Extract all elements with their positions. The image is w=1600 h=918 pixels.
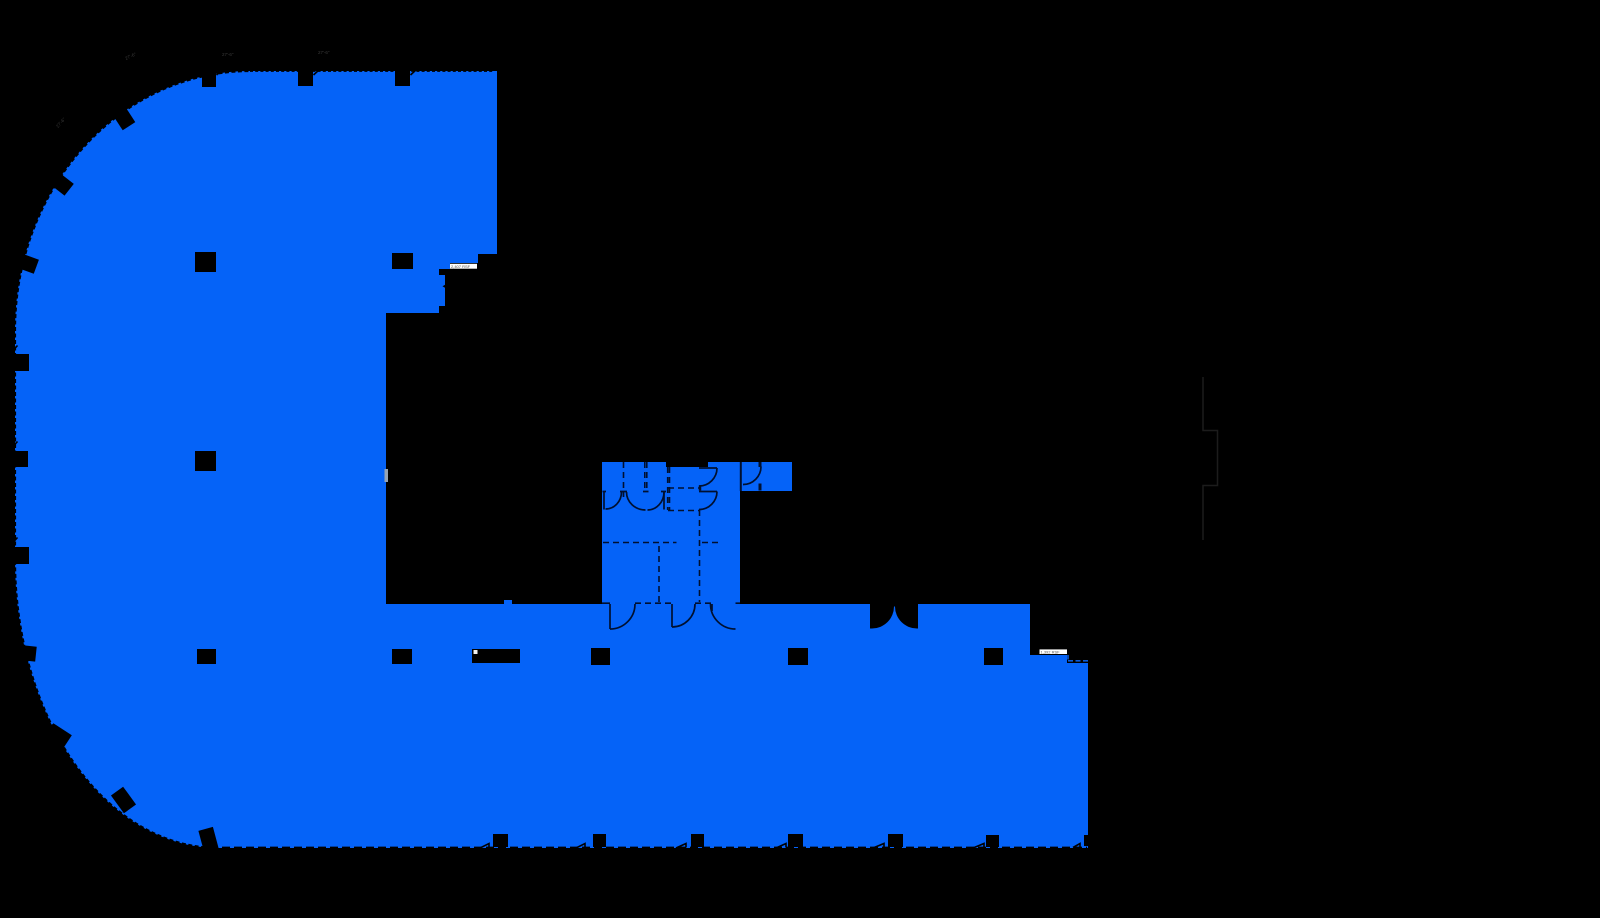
svg-text:2,407 RSF: 2,407 RSF bbox=[451, 264, 471, 269]
svg-text:27'-6": 27'-6" bbox=[318, 50, 330, 55]
svg-text:27'-6": 27'-6" bbox=[222, 52, 234, 57]
svg-text:1,392 RSF: 1,392 RSF bbox=[1041, 649, 1061, 654]
